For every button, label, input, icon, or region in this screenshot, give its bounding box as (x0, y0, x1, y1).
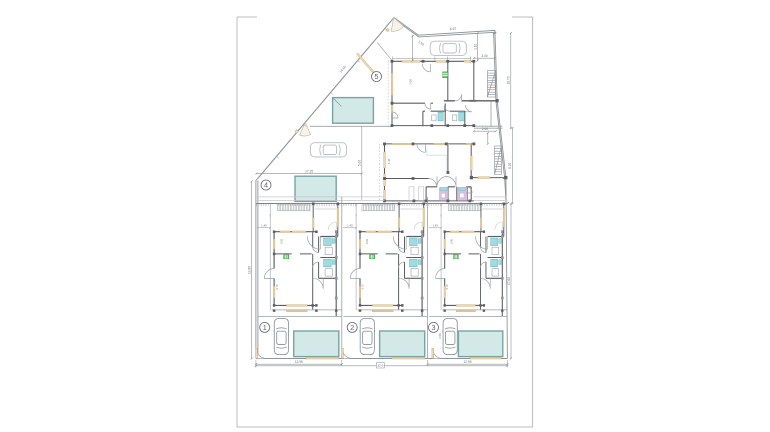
svg-text:3.70: 3.70 (361, 284, 365, 290)
svg-text:3.70: 3.70 (446, 284, 449, 290)
svg-text:4: 4 (264, 181, 268, 190)
svg-text:3: 3 (432, 323, 436, 332)
svg-text:5.45: 5.45 (387, 158, 391, 164)
svg-text:5.00: 5.00 (358, 160, 362, 166)
svg-text:17.60: 17.60 (507, 277, 511, 285)
svg-text:8.97: 8.97 (450, 27, 457, 31)
svg-text:3.05: 3.05 (279, 238, 283, 244)
svg-text:3.05: 3.05 (450, 238, 453, 244)
svg-text:7.00: 7.00 (408, 79, 412, 85)
svg-text:12.95: 12.95 (295, 360, 303, 364)
svg-text:12.95: 12.95 (464, 360, 472, 364)
svg-text:1.45: 1.45 (261, 224, 267, 228)
svg-text:1.10: 1.10 (473, 43, 477, 49)
svg-text:17.25: 17.25 (305, 169, 313, 173)
svg-text:5: 5 (375, 72, 379, 81)
svg-text:4.50: 4.50 (438, 333, 442, 339)
svg-text:1.45: 1.45 (347, 224, 353, 228)
svg-text:3.40: 3.40 (481, 54, 487, 58)
svg-text:10.70: 10.70 (507, 76, 511, 84)
svg-text:2: 2 (350, 323, 354, 332)
svg-text:3.05: 3.05 (365, 238, 369, 244)
svg-text:3.70: 3.70 (275, 284, 279, 290)
svg-text:1.45: 1.45 (433, 223, 439, 227)
svg-text:8.25: 8.25 (508, 162, 512, 168)
svg-text:2.60: 2.60 (482, 127, 488, 131)
svg-text:19.80: 19.80 (247, 266, 251, 274)
svg-text:32.0: 32.0 (377, 364, 383, 368)
svg-text:1: 1 (263, 323, 267, 332)
